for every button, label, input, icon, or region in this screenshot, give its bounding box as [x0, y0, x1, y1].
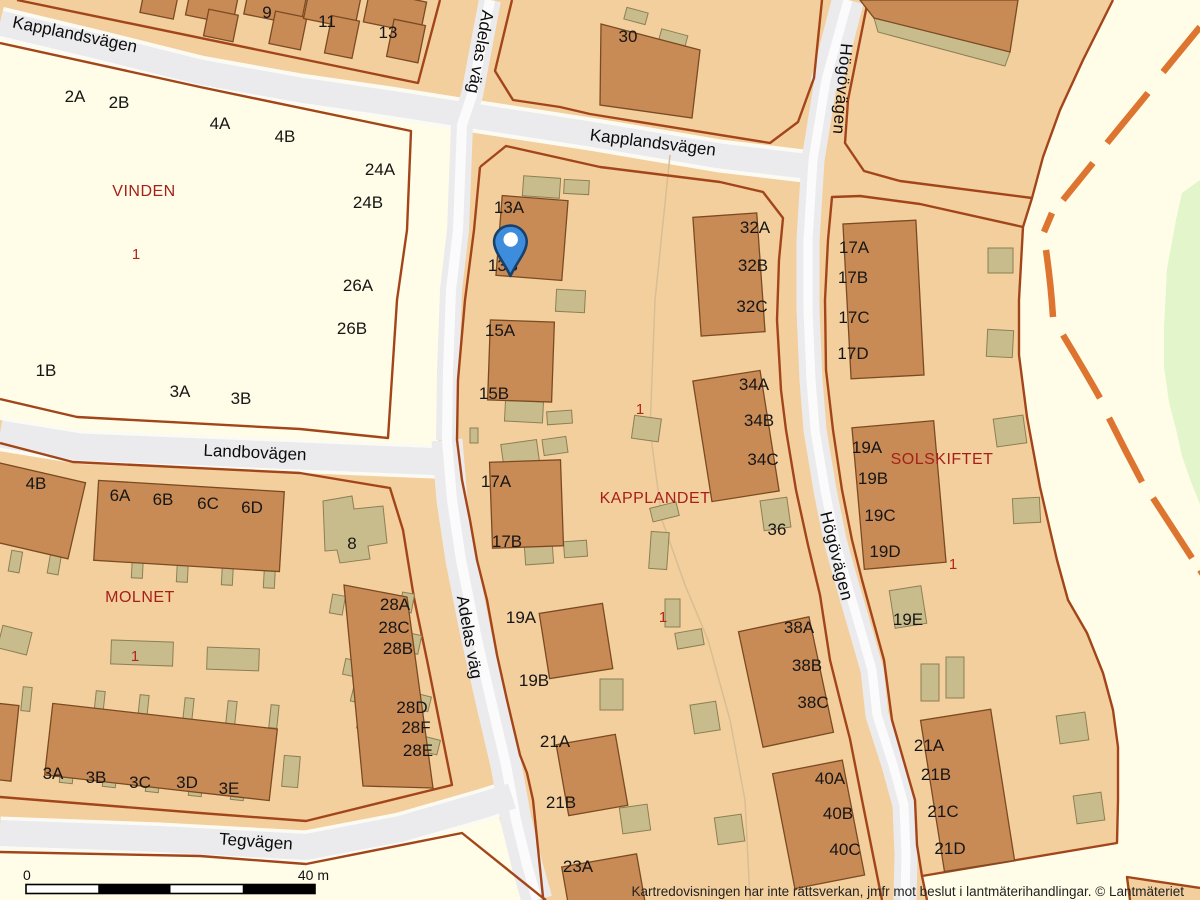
svg-text:36: 36	[768, 520, 787, 539]
svg-text:40B: 40B	[823, 804, 853, 823]
svg-text:21A: 21A	[914, 736, 945, 755]
svg-text:32A: 32A	[740, 218, 771, 237]
svg-text:19E: 19E	[893, 610, 923, 629]
svg-text:3A: 3A	[43, 764, 64, 783]
svg-text:19A: 19A	[506, 608, 537, 627]
svg-text:2B: 2B	[109, 93, 130, 112]
svg-text:8: 8	[347, 534, 356, 553]
svg-text:17B: 17B	[838, 268, 868, 287]
svg-text:11: 11	[318, 12, 336, 31]
svg-text:28A: 28A	[380, 595, 411, 614]
svg-text:28E: 28E	[403, 741, 433, 760]
svg-text:SOLSKIFTET: SOLSKIFTET	[891, 451, 994, 468]
svg-text:21B: 21B	[546, 793, 576, 812]
svg-text:19B: 19B	[519, 671, 549, 690]
svg-text:Kartredovisningen har inte rät: Kartredovisningen har inte rättsverkan, …	[632, 884, 1185, 899]
svg-text:6B: 6B	[153, 490, 174, 509]
svg-text:40A: 40A	[815, 769, 846, 788]
svg-text:6A: 6A	[110, 486, 131, 505]
svg-text:MOLNET: MOLNET	[105, 589, 175, 606]
svg-text:4B: 4B	[26, 474, 47, 493]
svg-text:17B: 17B	[492, 532, 522, 551]
svg-text:1: 1	[659, 609, 667, 626]
svg-text:32B: 32B	[738, 256, 768, 275]
svg-text:1: 1	[131, 648, 139, 665]
svg-text:21D: 21D	[934, 839, 965, 858]
svg-text:15B: 15B	[479, 384, 509, 403]
svg-text:17D: 17D	[837, 344, 868, 363]
svg-text:1: 1	[949, 556, 957, 573]
svg-text:3B: 3B	[231, 389, 252, 408]
svg-text:6C: 6C	[197, 494, 219, 513]
svg-text:19C: 19C	[864, 506, 895, 525]
svg-text:3A: 3A	[170, 382, 191, 401]
svg-text:KAPPLANDET: KAPPLANDET	[600, 490, 711, 507]
svg-text:3B: 3B	[86, 768, 107, 787]
svg-text:3E: 3E	[219, 779, 240, 798]
svg-text:30: 30	[619, 27, 638, 46]
svg-text:2A: 2A	[65, 87, 86, 106]
svg-text:26B: 26B	[337, 319, 367, 338]
svg-text:15A: 15A	[485, 321, 516, 340]
svg-text:1: 1	[132, 246, 140, 263]
svg-text:19B: 19B	[858, 469, 888, 488]
svg-text:13A: 13A	[494, 198, 525, 217]
svg-text:28C: 28C	[378, 618, 409, 637]
svg-text:0: 0	[23, 867, 31, 883]
svg-text:21B: 21B	[921, 765, 951, 784]
svg-text:19D: 19D	[869, 542, 900, 561]
svg-text:17A: 17A	[839, 238, 870, 257]
svg-text:34B: 34B	[744, 411, 774, 430]
svg-text:38B: 38B	[792, 656, 822, 675]
svg-text:4B: 4B	[275, 127, 296, 146]
svg-text:38A: 38A	[784, 618, 815, 637]
svg-text:13: 13	[379, 23, 398, 42]
svg-text:VINDEN: VINDEN	[112, 183, 175, 200]
svg-text:1: 1	[636, 401, 644, 418]
svg-text:34A: 34A	[739, 375, 770, 394]
svg-text:17C: 17C	[838, 308, 869, 327]
svg-text:19A: 19A	[852, 438, 883, 457]
svg-text:38C: 38C	[797, 693, 828, 712]
svg-text:23A: 23A	[563, 857, 594, 876]
svg-text:26A: 26A	[343, 276, 374, 295]
svg-text:24A: 24A	[365, 160, 396, 179]
svg-text:28B: 28B	[383, 639, 413, 658]
svg-text:6D: 6D	[241, 498, 263, 517]
svg-text:28D: 28D	[396, 698, 427, 717]
svg-text:40 m: 40 m	[298, 867, 329, 883]
svg-text:34C: 34C	[747, 450, 778, 469]
svg-text:3C: 3C	[129, 773, 151, 792]
svg-text:24B: 24B	[353, 193, 383, 212]
svg-text:21A: 21A	[540, 732, 571, 751]
svg-text:21C: 21C	[927, 802, 958, 821]
svg-text:4A: 4A	[210, 114, 231, 133]
svg-text:17A: 17A	[481, 472, 512, 491]
svg-text:1B: 1B	[36, 361, 57, 380]
svg-text:32C: 32C	[736, 297, 767, 316]
svg-text:40C: 40C	[829, 840, 860, 859]
svg-text:9: 9	[262, 3, 271, 22]
svg-text:3D: 3D	[176, 773, 198, 792]
svg-text:28F: 28F	[401, 718, 430, 737]
